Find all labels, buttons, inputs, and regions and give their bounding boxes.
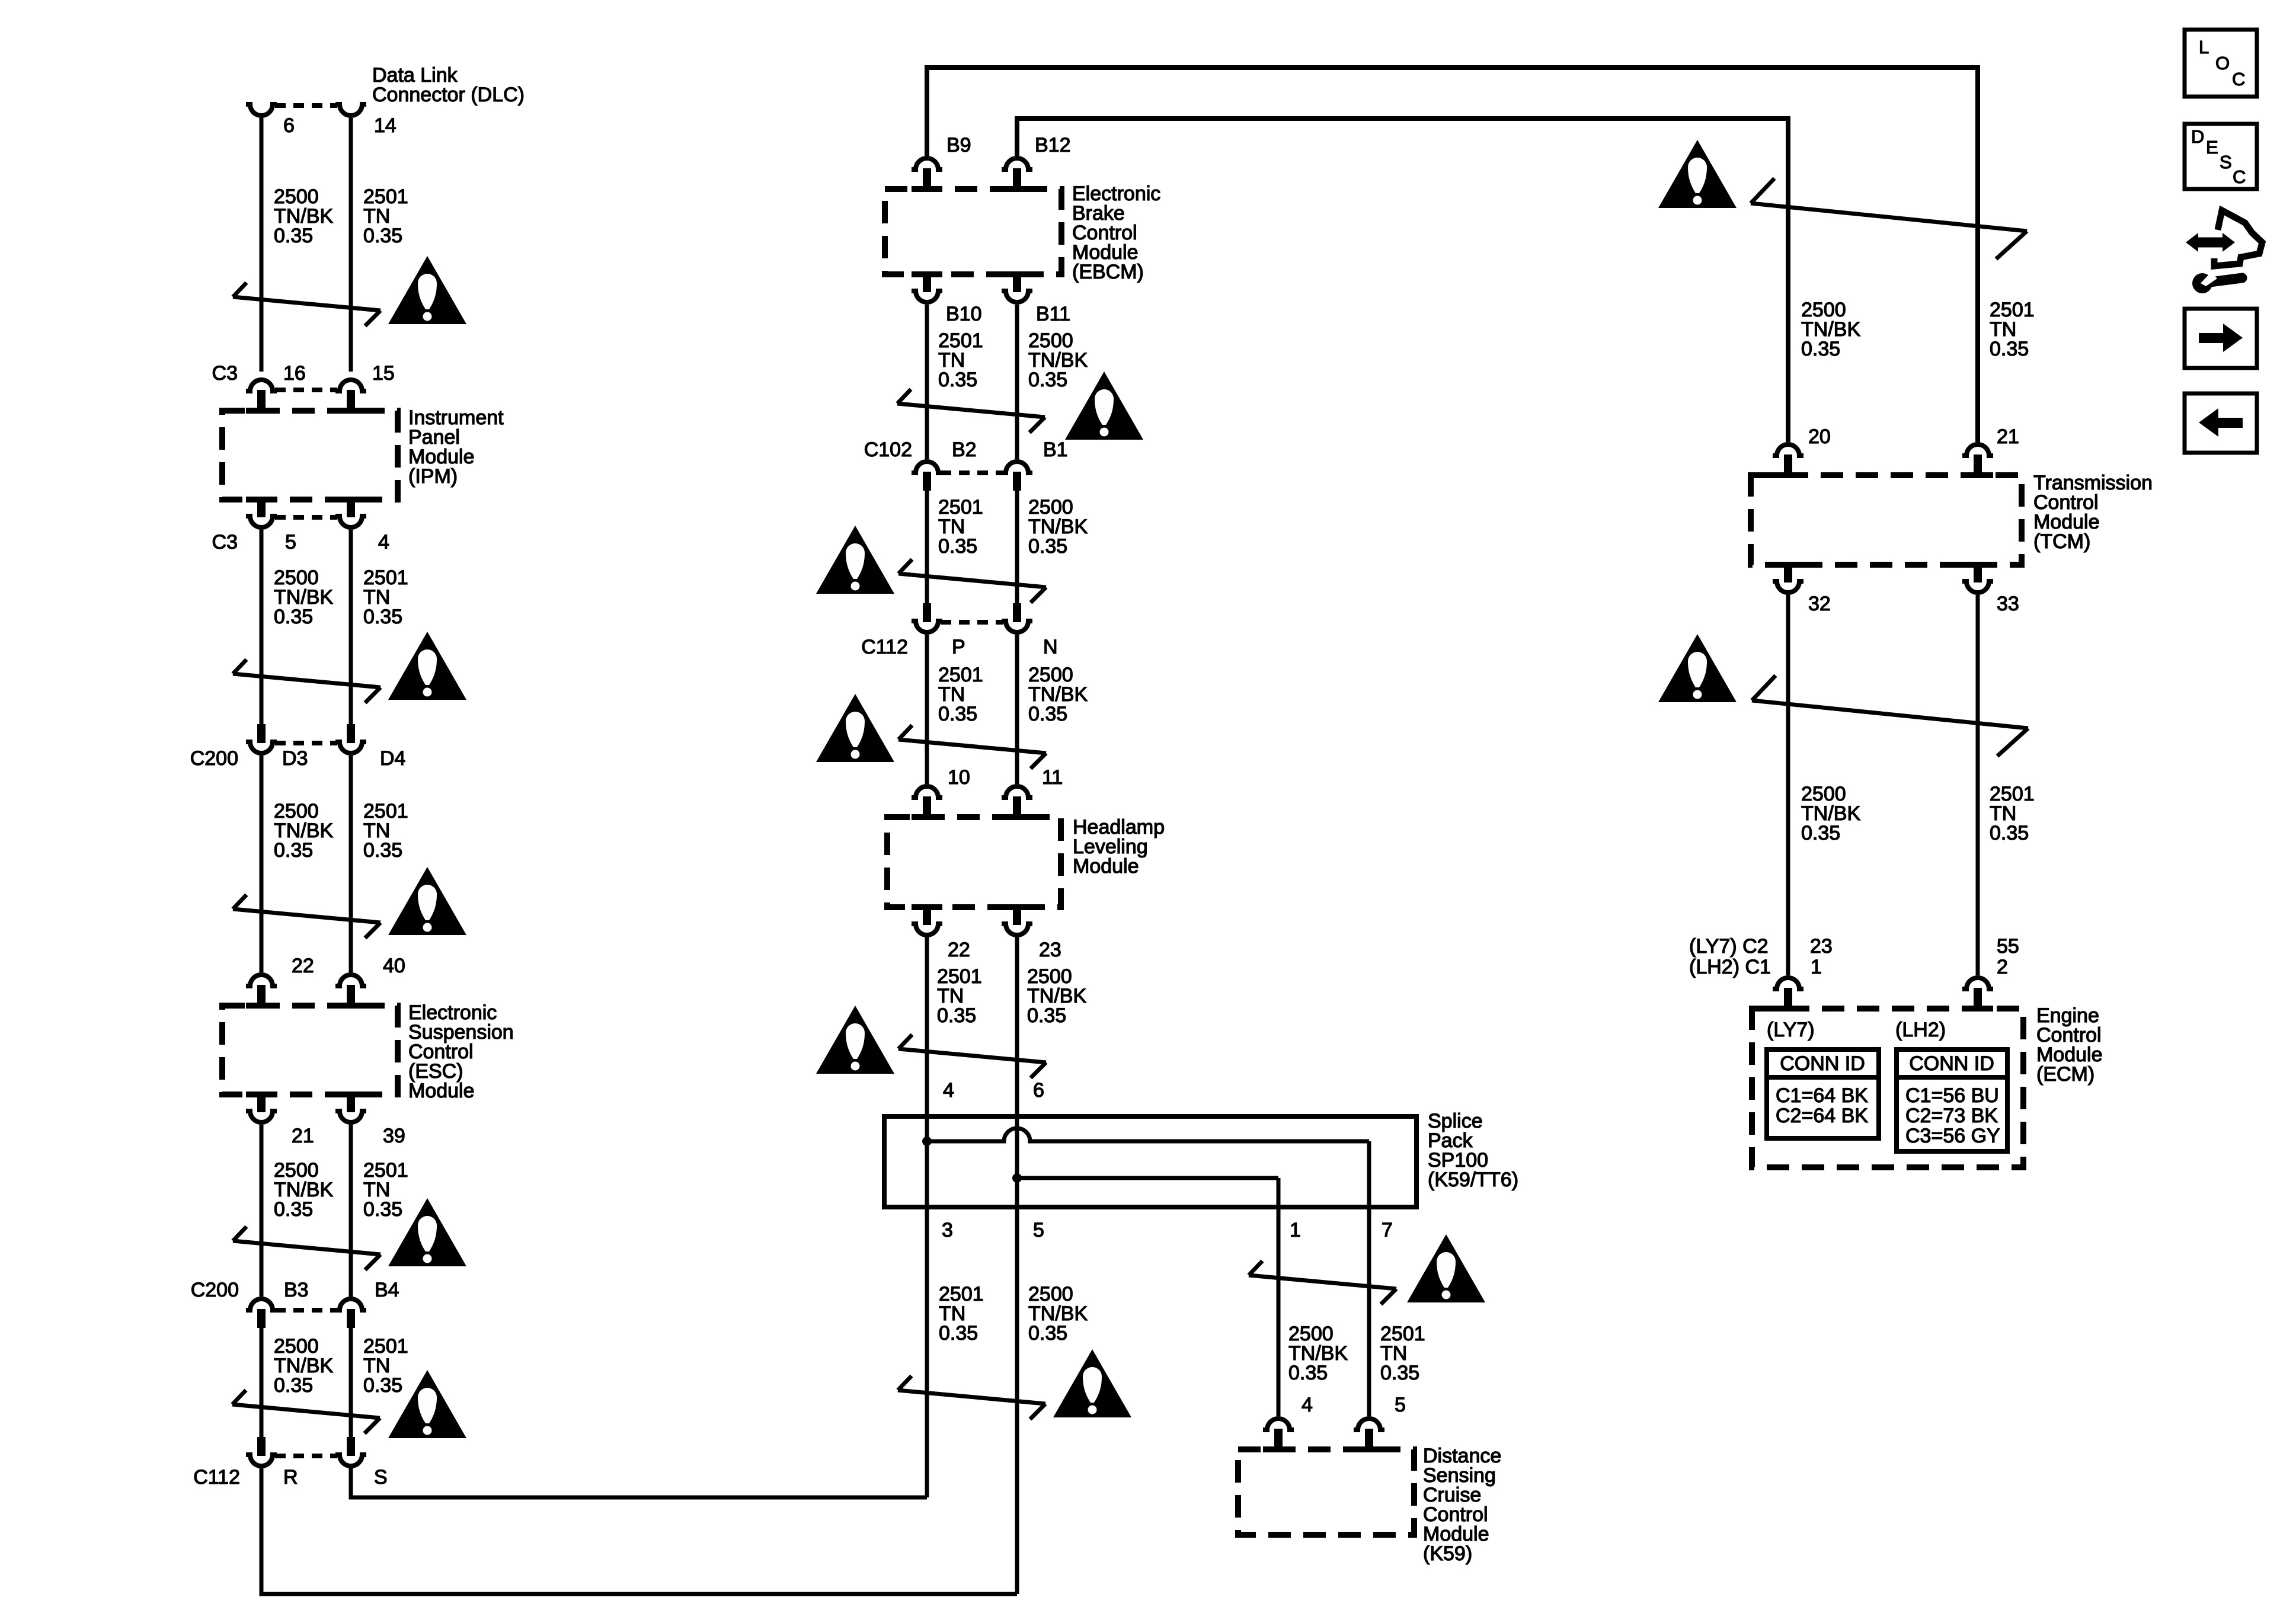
svg-text:0.35: 0.35 xyxy=(1380,1362,1419,1384)
svg-text:P: P xyxy=(952,636,965,658)
svg-text:0.35: 0.35 xyxy=(1028,369,1067,391)
svg-text:D4: D4 xyxy=(380,747,405,770)
svg-text:23: 23 xyxy=(1810,935,1833,958)
svg-text:21: 21 xyxy=(1997,425,2019,448)
svg-text:5: 5 xyxy=(1033,1219,1044,1241)
svg-text:0.35: 0.35 xyxy=(274,839,313,862)
svg-text:(IPM): (IPM) xyxy=(408,465,458,488)
svg-text:10: 10 xyxy=(948,766,970,789)
svg-text:Module: Module xyxy=(408,1080,475,1102)
svg-text:0.35: 0.35 xyxy=(937,1004,976,1027)
svg-text:0.35: 0.35 xyxy=(1990,338,2029,360)
svg-text:L: L xyxy=(2199,37,2209,57)
svg-text:5: 5 xyxy=(285,531,296,553)
svg-text:7: 7 xyxy=(1382,1219,1393,1241)
svg-text:0.35: 0.35 xyxy=(274,225,313,247)
svg-text:4: 4 xyxy=(1302,1394,1313,1416)
svg-text:6: 6 xyxy=(1033,1079,1044,1102)
svg-text:0.35: 0.35 xyxy=(363,1374,402,1397)
svg-text:22: 22 xyxy=(292,955,314,977)
svg-text:0.35: 0.35 xyxy=(938,369,977,391)
svg-text:C200: C200 xyxy=(191,1279,239,1301)
svg-text:0.35: 0.35 xyxy=(1027,1004,1066,1027)
svg-text:0.35: 0.35 xyxy=(1801,822,1840,844)
svg-text:C2=64 BK: C2=64 BK xyxy=(1776,1105,1868,1127)
svg-text:R: R xyxy=(283,1466,298,1489)
svg-text:C200: C200 xyxy=(190,747,238,770)
svg-text:1: 1 xyxy=(1811,956,1822,978)
svg-text:CONN ID: CONN ID xyxy=(1780,1052,1865,1075)
svg-text:C: C xyxy=(2232,69,2245,89)
svg-text:S: S xyxy=(374,1466,388,1489)
svg-text:4: 4 xyxy=(943,1079,954,1102)
svg-text:33: 33 xyxy=(1997,593,2019,615)
svg-text:0.35: 0.35 xyxy=(939,1322,978,1345)
svg-text:B2: B2 xyxy=(952,438,977,461)
svg-text:Connector (DLC): Connector (DLC) xyxy=(372,84,525,106)
svg-text:40: 40 xyxy=(383,955,405,977)
svg-text:0.35: 0.35 xyxy=(363,839,402,862)
svg-text:C102: C102 xyxy=(864,438,912,461)
svg-text:0.35: 0.35 xyxy=(363,225,402,247)
svg-text:55: 55 xyxy=(1997,935,2019,958)
svg-text:C: C xyxy=(2233,167,2246,187)
svg-text:4: 4 xyxy=(378,531,389,553)
svg-text:C1=64 BK: C1=64 BK xyxy=(1776,1084,1868,1107)
svg-text:C3=56 GY: C3=56 GY xyxy=(1905,1125,2000,1147)
svg-text:Module: Module xyxy=(1073,855,1139,878)
svg-text:5: 5 xyxy=(1395,1394,1406,1416)
svg-text:0.35: 0.35 xyxy=(1990,822,2029,844)
svg-text:32: 32 xyxy=(1808,593,1831,615)
svg-text:O: O xyxy=(2215,53,2230,73)
svg-text:(LH2): (LH2) xyxy=(1895,1019,1946,1041)
svg-text:20: 20 xyxy=(1808,425,1831,448)
svg-text:0.35: 0.35 xyxy=(1801,338,1840,360)
svg-text:(LH2) C1: (LH2) C1 xyxy=(1689,956,1771,978)
svg-text:21: 21 xyxy=(292,1125,314,1147)
svg-text:23: 23 xyxy=(1039,939,1061,961)
svg-text:39: 39 xyxy=(383,1125,405,1147)
svg-text:0.35: 0.35 xyxy=(1028,1322,1067,1345)
svg-text:3: 3 xyxy=(942,1219,953,1241)
svg-text:N: N xyxy=(1043,636,1058,658)
svg-text:22: 22 xyxy=(948,939,970,961)
svg-text:0.35: 0.35 xyxy=(363,1198,402,1221)
svg-text:(ECM): (ECM) xyxy=(2036,1063,2094,1086)
svg-text:B4: B4 xyxy=(375,1279,399,1301)
svg-text:(K59/TT6): (K59/TT6) xyxy=(1428,1169,1518,1191)
svg-text:16: 16 xyxy=(283,362,306,385)
svg-text:(EBCM): (EBCM) xyxy=(1072,261,1144,283)
svg-text:(LY7) C2: (LY7) C2 xyxy=(1689,935,1769,958)
svg-text:C112: C112 xyxy=(861,636,908,658)
svg-text:C3: C3 xyxy=(212,362,238,385)
svg-text:B10: B10 xyxy=(946,303,982,325)
svg-text:0.35: 0.35 xyxy=(363,606,402,628)
svg-text:(LY7): (LY7) xyxy=(1767,1019,1815,1041)
svg-text:B3: B3 xyxy=(284,1279,309,1301)
svg-text:0.35: 0.35 xyxy=(938,535,977,558)
svg-text:B1: B1 xyxy=(1043,438,1068,461)
svg-text:C2=73 BK: C2=73 BK xyxy=(1905,1105,1998,1127)
svg-text:D: D xyxy=(2191,126,2204,147)
svg-text:(TCM): (TCM) xyxy=(2033,530,2090,553)
svg-text:S: S xyxy=(2220,152,2232,172)
svg-text:15: 15 xyxy=(372,362,395,385)
svg-text:0.35: 0.35 xyxy=(274,606,313,628)
svg-text:C1=56 BU: C1=56 BU xyxy=(1905,1084,1999,1107)
svg-text:0.35: 0.35 xyxy=(938,703,977,725)
svg-text:B11: B11 xyxy=(1036,303,1070,325)
svg-text:14: 14 xyxy=(374,114,396,137)
svg-text:0.35: 0.35 xyxy=(274,1198,313,1221)
svg-text:B9: B9 xyxy=(946,134,971,156)
svg-text:0.35: 0.35 xyxy=(1288,1362,1328,1384)
svg-text:E: E xyxy=(2206,137,2218,158)
svg-text:0.35: 0.35 xyxy=(1028,703,1067,725)
svg-text:(K59): (K59) xyxy=(1423,1542,1472,1565)
svg-text:B12: B12 xyxy=(1035,134,1071,156)
svg-text:C3: C3 xyxy=(212,531,238,553)
svg-text:D3: D3 xyxy=(282,747,308,770)
svg-text:2: 2 xyxy=(1997,956,2008,978)
svg-text:1: 1 xyxy=(1290,1219,1301,1241)
svg-text:C112: C112 xyxy=(193,1466,240,1489)
svg-text:CONN ID: CONN ID xyxy=(1909,1052,1994,1075)
svg-text:11: 11 xyxy=(1042,766,1063,789)
svg-text:6: 6 xyxy=(283,114,295,137)
svg-text:0.35: 0.35 xyxy=(274,1374,313,1397)
svg-text:0.35: 0.35 xyxy=(1028,535,1067,558)
